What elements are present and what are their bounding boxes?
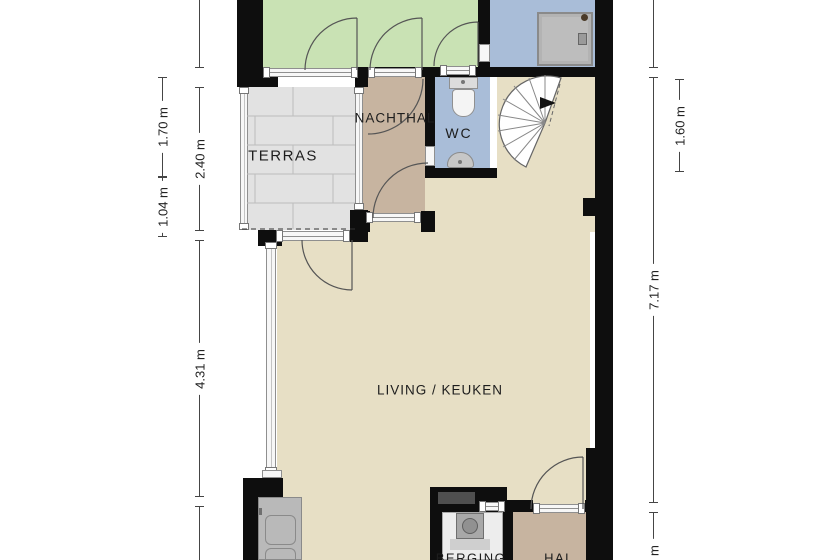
wc-sink-drain-icon	[458, 160, 462, 164]
wall	[421, 211, 435, 232]
wall	[425, 168, 497, 178]
dimension-left-inner-lower: 4.31 m	[199, 240, 200, 497]
window-frame	[263, 68, 358, 77]
door-frame	[440, 66, 476, 75]
door-frame	[425, 146, 435, 166]
dimension-left-inner-upper: 2.40 m	[199, 87, 200, 231]
room-label-living: LIVING / KEUKEN	[377, 383, 503, 398]
window-frame	[262, 470, 282, 478]
garden-area	[263, 0, 478, 68]
toilet-button-icon	[461, 80, 465, 84]
door-frame	[366, 213, 421, 222]
dimension-right-inner-main: 7.17 m	[653, 77, 654, 503]
dimension-label: 1.04 m	[155, 181, 170, 233]
dimension-left-inner-run-bottom	[199, 506, 200, 560]
kitchen-appliance-door	[265, 548, 296, 560]
dimension-label: 2.40 m	[192, 133, 207, 185]
dimension-label: 7.17 m	[646, 264, 661, 316]
room-label-hal: HAL	[544, 551, 574, 560]
dimension-label: 1.60 m	[672, 100, 687, 152]
kitchen-appliance-door	[265, 515, 296, 545]
washer-shadow	[450, 539, 490, 550]
dimension-label: 4.31 m	[192, 343, 207, 395]
floorplan-canvas: TERRAS NACHTHAL WC LIVING / KEUKEN BERGI…	[0, 0, 840, 560]
nachthal-floor	[363, 77, 425, 214]
dimension-right-inner-run-top	[653, 0, 654, 68]
dimension-label: 1.70 m	[155, 101, 170, 153]
dimension-right-inner-bottom: 7 m	[653, 512, 654, 560]
wall	[585, 500, 595, 512]
dimension-right-outer-top: 1.60 m	[679, 79, 680, 172]
appliance-handle-icon	[259, 508, 262, 515]
door-frame	[368, 68, 422, 77]
window-frame	[266, 242, 276, 474]
dimension-left-outer-top: 1.70 m	[162, 77, 163, 177]
wall	[237, 0, 263, 74]
living-floor	[425, 178, 497, 232]
shower-tap-icon	[578, 33, 587, 45]
dimension-label: 7 m	[646, 539, 661, 560]
room-label-nachthal: NACHTHAL	[355, 111, 436, 126]
sliding-door-frame	[276, 231, 350, 241]
shower-head-icon	[581, 14, 588, 21]
wall	[583, 198, 595, 216]
window-frame	[355, 87, 363, 210]
toilet	[452, 89, 475, 117]
living-floor	[497, 77, 596, 232]
wall	[595, 0, 613, 560]
room-label-wc: WC	[445, 125, 472, 141]
door-frame	[479, 502, 505, 511]
door-frame	[533, 504, 585, 513]
window-frame	[240, 87, 248, 230]
dimension-left-outer-bottom: 1.04 m	[162, 177, 163, 237]
room-label-berging: BERGING	[436, 551, 506, 560]
door-frame	[479, 44, 490, 62]
dimension-left-inner-run-top	[199, 0, 200, 68]
room-label-terras: TERRAS	[248, 148, 318, 165]
berging-counter	[438, 492, 475, 504]
washing-machine-drum-icon	[462, 518, 478, 534]
